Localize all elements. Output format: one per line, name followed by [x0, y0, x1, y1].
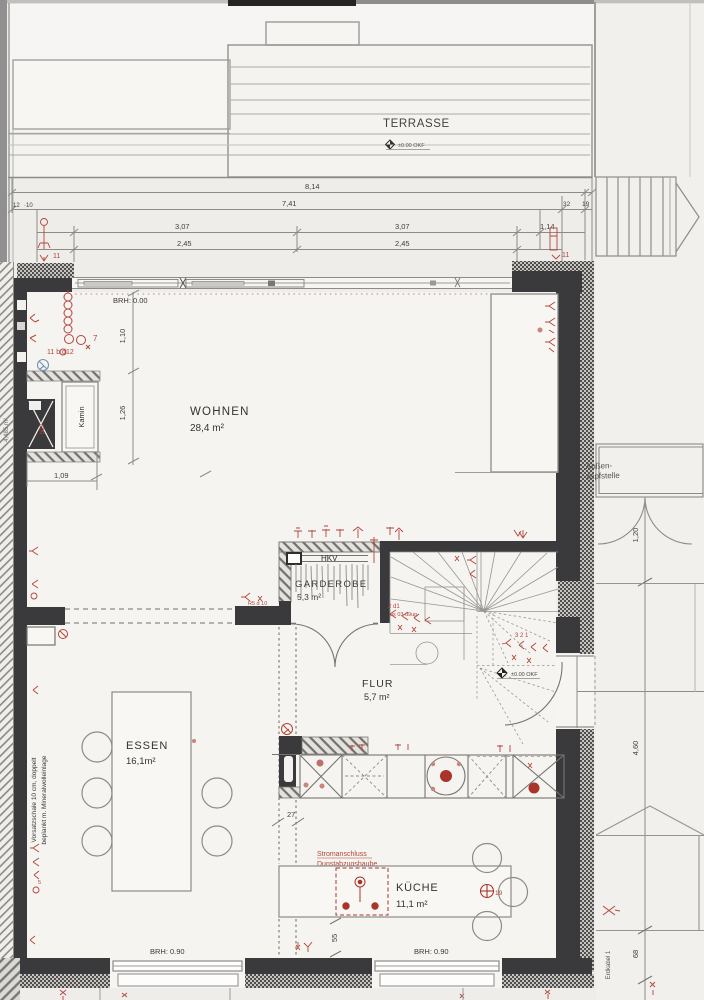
svg-text:±0.00 OKF: ±0.00 OKF: [398, 143, 425, 149]
svg-text:11: 11: [53, 253, 60, 260]
svg-text:28,4 m²: 28,4 m²: [190, 423, 225, 434]
svg-text:Vorsatzschale 10 cm, doppelt: Vorsatzschale 10 cm, doppelt: [31, 757, 38, 842]
svg-text:8,14: 8,14: [305, 182, 320, 191]
svg-text:11: 11: [562, 252, 569, 259]
svg-text:55: 55: [330, 934, 339, 942]
svg-text:R5 d 10: R5 d 10: [248, 601, 267, 607]
svg-text:32: 32: [563, 201, 571, 208]
svg-text:68: 68: [631, 950, 640, 958]
svg-text:WOHNEN: WOHNEN: [190, 406, 250, 418]
svg-text:2,45: 2,45: [395, 239, 410, 248]
svg-text:ESSEN: ESSEN: [126, 740, 168, 752]
svg-text:KÜCHE: KÜCHE: [396, 882, 439, 894]
svg-text:11,1 m²: 11,1 m²: [396, 899, 428, 910]
svg-text:HKV: HKV: [321, 554, 338, 563]
svg-text:4,60: 4,60: [631, 741, 640, 756]
svg-text:3 2 1: 3 2 1: [515, 633, 529, 639]
svg-text:BRH: 0.90: BRH: 0.90: [150, 947, 185, 956]
svg-text:1,14: 1,14: [540, 222, 555, 231]
svg-text:16,1m²: 16,1m²: [126, 756, 156, 767]
svg-text:GARDEROBE: GARDEROBE: [295, 579, 367, 590]
svg-text:2,45: 2,45: [177, 239, 192, 248]
svg-text:12: 12: [13, 203, 20, 209]
svg-text:2 d1: 2 d1: [388, 604, 400, 610]
svg-text:ox 03 d9up: ox 03 d9up: [390, 612, 417, 618]
svg-text:FLUR: FLUR: [362, 678, 393, 690]
svg-text:1,26: 1,26: [118, 406, 127, 421]
svg-text:19: 19: [582, 201, 590, 208]
svg-text:BRH: 0.00: BRH: 0.00: [113, 296, 148, 305]
svg-text:BRH: 0.90: BRH: 0.90: [414, 947, 449, 956]
svg-text:7,41: 7,41: [282, 199, 297, 208]
svg-text:TERRASSE: TERRASSE: [383, 118, 450, 130]
svg-text:·10: ·10: [24, 203, 33, 209]
svg-text:3,07: 3,07: [175, 222, 190, 231]
svg-text:1,09: 1,09: [54, 471, 69, 480]
svg-text:±0.00 OKF: ±0.00 OKF: [511, 672, 538, 678]
svg-text:7: 7: [93, 334, 98, 343]
svg-text:beplankt m. Mineralwolleinlage: beplankt m. Mineralwolleinlage: [41, 755, 48, 844]
svg-text:Erdkabel 1: Erdkabel 1: [606, 950, 612, 979]
svg-text:1,10: 1,10: [118, 329, 127, 344]
svg-text:5,7 m²: 5,7 m²: [364, 692, 390, 702]
svg-text:27: 27: [287, 810, 295, 819]
svg-text:Kamin: Kamin: [77, 406, 86, 427]
svg-text:5: 5: [38, 880, 41, 886]
svg-text:zapfstelle: zapfstelle: [586, 471, 621, 481]
svg-text:Stromanschluss: Stromanschluss: [317, 851, 367, 858]
svg-text:b09: b09: [40, 423, 46, 434]
svg-text:5,3 m²: 5,3 m²: [297, 592, 321, 602]
svg-text:11 b d12: 11 b d12: [47, 349, 74, 356]
svg-text:Außen-: Außen-: [586, 461, 613, 471]
svg-text:4,485 m²: 4,485 m²: [4, 418, 10, 442]
svg-text:3,07: 3,07: [395, 222, 410, 231]
svg-text:1,20: 1,20: [631, 528, 640, 543]
svg-text:19: 19: [495, 890, 503, 897]
